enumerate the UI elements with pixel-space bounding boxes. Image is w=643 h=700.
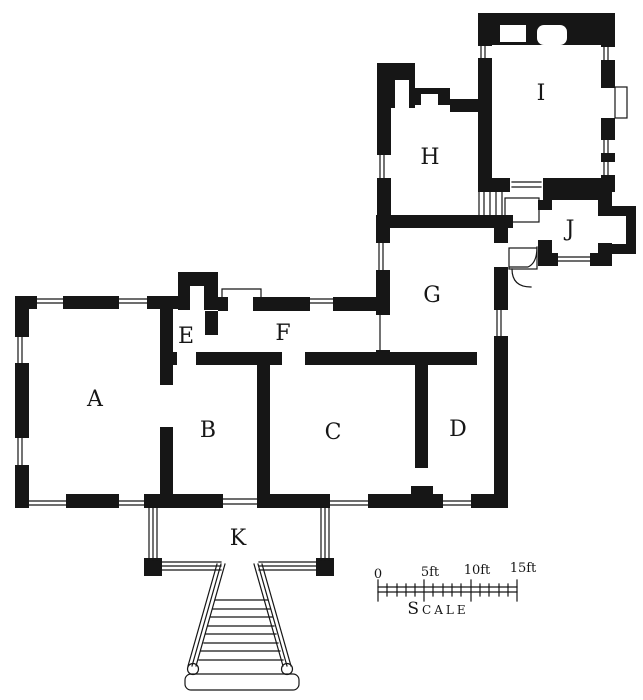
room-label-f: F	[275, 321, 290, 346]
scale-tick-0: 0	[374, 567, 382, 582]
room-label-k: K	[230, 526, 247, 551]
room-label-i: I	[537, 81, 546, 106]
line-work	[18, 46, 627, 690]
scale-caption: Scale	[407, 599, 468, 619]
room-label-c: C	[325, 420, 342, 445]
room-label-g: G	[423, 283, 441, 308]
floor-plan-image: 0 5ft 10ft 15ft Scale A B C D E F G H I …	[0, 0, 643, 700]
room-label-j: J	[564, 217, 575, 242]
room-label-b: B	[200, 418, 216, 443]
room-label-d: D	[449, 417, 467, 442]
floor-plan-sheet: 0 5ft 10ft 15ft Scale A B C D E F G H I …	[0, 0, 643, 700]
room-label-a: A	[86, 387, 104, 412]
scale-bar: 0 5ft 10ft 15ft Scale	[374, 561, 537, 619]
room-label-e: E	[178, 324, 194, 349]
scale-tick-15ft: 15ft	[510, 561, 537, 576]
scale-tick-10ft: 10ft	[464, 563, 491, 578]
scale-tick-5ft: 5ft	[421, 565, 440, 580]
room-label-h: H	[420, 145, 439, 170]
